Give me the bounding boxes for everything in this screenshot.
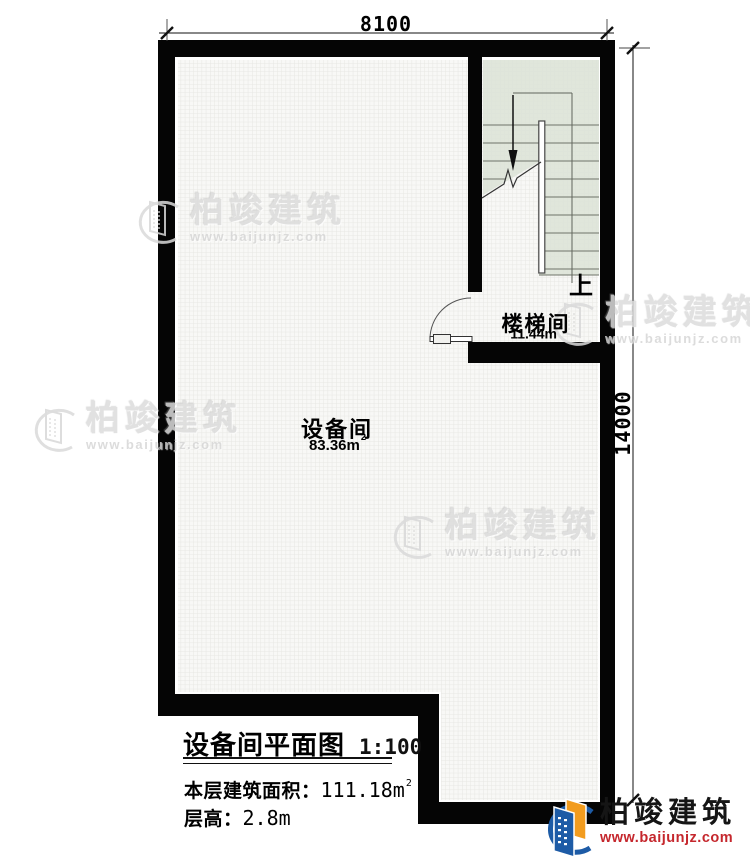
building-area-label: 本层建筑面积： [184,781,321,802]
floor-height-line: 层高：2.8m [184,804,291,831]
room-area-sup: 2 [361,432,366,442]
title-underline [183,757,392,764]
drawing-scale: 1:100 [359,735,422,759]
room-area-value: 83.36m [309,437,360,454]
partition-wall-vertical [468,57,482,292]
brand-logo: 柏竣建筑 www.baijunjz.com [543,797,736,863]
stairwell-bottom-wall [468,342,600,363]
brand-name: 柏竣建筑 [600,797,736,830]
room-area-sup: 2 [558,321,563,331]
dimension-height-value: 14000 [611,377,635,469]
stairs-up-label: 上 [565,266,597,301]
door-panel [434,335,451,344]
room-area-equipment: 83.36m2 [277,436,397,454]
brand-url: www.baijunjz.com [600,830,736,846]
building-area-sup: 2 [406,778,412,789]
room-area-stairwell: 11.44m2 [475,325,597,342]
building-area-line: 本层建筑面积：111.18m2 [184,776,411,803]
building-area-value: 111.18m [321,778,405,802]
brand-logo-icon [543,797,595,863]
floor-height-label: 层高： [184,809,243,830]
floor-height-value: 2.8m [243,806,291,830]
floor-plan-page: 柏竣建筑 www.baijunjz.com 柏竣建筑 www.baijunjz.… [0,0,750,865]
room-area-value: 11.44m [510,326,557,342]
dimension-width-value: 8100 [336,12,436,36]
stair-rail [539,121,545,273]
